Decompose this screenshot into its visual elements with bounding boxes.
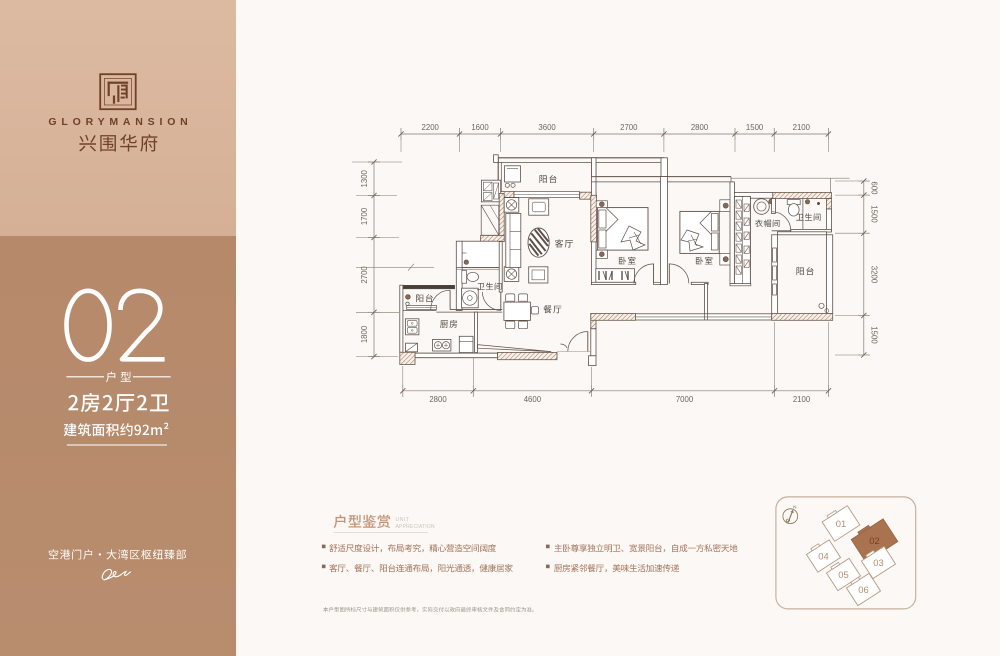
svg-text:01: 01 bbox=[836, 518, 846, 529]
svg-text:3200: 3200 bbox=[870, 266, 879, 284]
svg-text:2700: 2700 bbox=[360, 266, 369, 284]
svg-text:05: 05 bbox=[838, 569, 848, 580]
svg-text:1800: 1800 bbox=[360, 325, 369, 343]
svg-text:600: 600 bbox=[870, 181, 879, 195]
svg-text:1700: 1700 bbox=[360, 207, 369, 225]
svg-text:2100: 2100 bbox=[793, 123, 811, 132]
svg-text:2700: 2700 bbox=[620, 123, 638, 132]
svg-text:2800: 2800 bbox=[429, 395, 447, 404]
svg-text:04: 04 bbox=[818, 551, 828, 562]
svg-text:4600: 4600 bbox=[524, 395, 542, 404]
svg-text:2200: 2200 bbox=[422, 123, 440, 132]
svg-text:1500: 1500 bbox=[870, 205, 879, 223]
svg-text:1600: 1600 bbox=[471, 123, 489, 132]
svg-text:2100: 2100 bbox=[793, 395, 811, 404]
svg-text:7000: 7000 bbox=[676, 395, 694, 404]
svg-text:1300: 1300 bbox=[360, 169, 369, 187]
svg-text:N: N bbox=[793, 504, 796, 509]
svg-text:1500: 1500 bbox=[746, 123, 764, 132]
svg-text:03: 03 bbox=[873, 557, 883, 568]
svg-text:02: 02 bbox=[869, 535, 879, 546]
svg-text:1500: 1500 bbox=[870, 326, 879, 344]
svg-text:GLORYMANSION: GLORYMANSION bbox=[48, 116, 192, 128]
svg-text:2800: 2800 bbox=[691, 123, 709, 132]
svg-text:APPRECIATION: APPRECIATION bbox=[396, 524, 435, 530]
svg-text:3600: 3600 bbox=[538, 123, 556, 132]
svg-text:06: 06 bbox=[858, 584, 868, 595]
svg-text:UNIT: UNIT bbox=[396, 517, 410, 523]
